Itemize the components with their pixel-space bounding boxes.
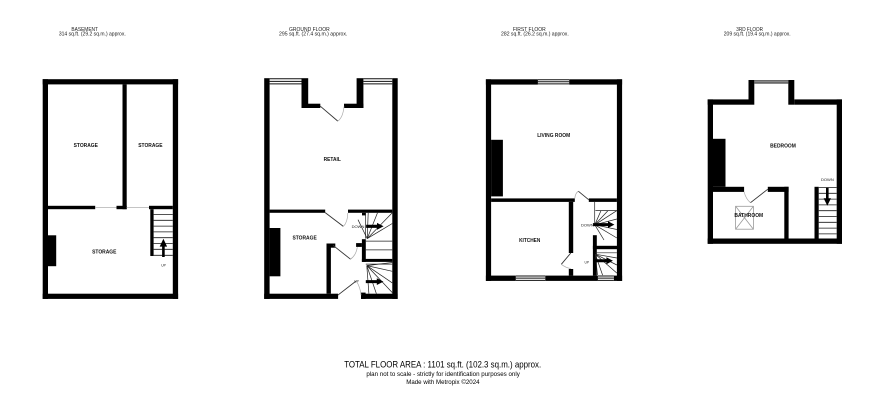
svg-text:BEDROOM: BEDROOM [770,143,796,149]
svg-text:282 sq.ft. (26.2 sq.m.) approx: 282 sq.ft. (26.2 sq.m.) approx. [501,31,569,37]
svg-text:209 sq.ft. (19.4 sq.m.) approx: 209 sq.ft. (19.4 sq.m.) approx. [724,31,791,37]
svg-text:KITCHEN: KITCHEN [519,238,540,244]
svg-text:DOWN: DOWN [581,224,594,228]
svg-text:DOWN: DOWN [352,225,365,229]
svg-text:STORAGE: STORAGE [138,143,163,149]
svg-text:314 sq.ft. (29.2 sq.m.) approx: 314 sq.ft. (29.2 sq.m.) approx. [59,31,126,37]
svg-text:295 sq.ft. (27.4 sq.m.) approx: 295 sq.ft. (27.4 sq.m.) approx. [279,31,347,37]
svg-text:STORAGE: STORAGE [92,249,117,255]
svg-text:plan not to scale - strictly f: plan not to scale - strictly for identif… [366,371,520,378]
svg-text:STORAGE: STORAGE [74,143,99,149]
svg-text:TOTAL FLOOR AREA : 1101 sq.ft.: TOTAL FLOOR AREA : 1101 sq.ft. (102.3 sq… [344,358,541,369]
svg-text:UP: UP [161,264,166,268]
svg-text:RETAIL: RETAIL [324,157,342,163]
svg-text:UP: UP [585,260,590,264]
svg-text:BATHROOM: BATHROOM [734,213,763,219]
svg-text:STORAGE: STORAGE [292,235,317,241]
svg-text:LIVING ROOM: LIVING ROOM [537,133,570,139]
svg-text:DOWN: DOWN [821,178,834,182]
svg-text:Made with Metropix ©2024: Made with Metropix ©2024 [406,378,480,386]
